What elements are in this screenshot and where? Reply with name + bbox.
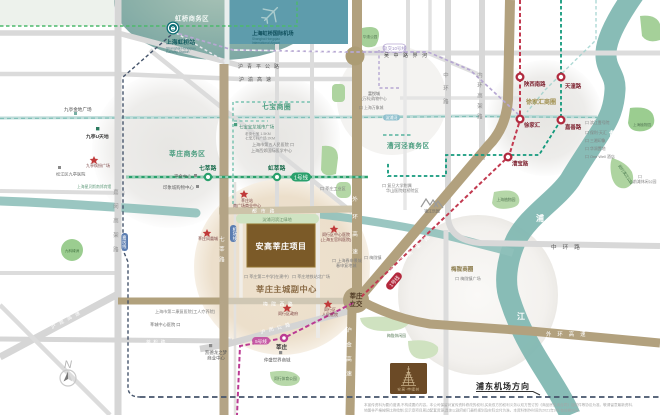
svg-text:华山医院虹桥院区: 华山医院虹桥院区 [386,187,419,193]
svg-text:九亭U天地: 九亭U天地 [85,133,109,140]
svg-text:莘城中心医院 口: 莘城中心医院 口 [150,321,180,328]
svg-text:Railway Station: Railway Station [166,50,189,54]
svg-text:口 三湘印象: 口 三湘印象 [585,138,606,143]
svg-text:N: N [64,359,72,371]
svg-text:老街七宝 1.5KM: 老街七宝 1.5KM [245,131,271,136]
svg-text:江: 江 [517,311,525,321]
svg-text:闵行区政府: 闵行区政府 [278,310,298,316]
svg-text:沪金高速: 沪金高速 [345,326,352,385]
svg-text:莘松路: 莘松路 [146,339,168,346]
svg-text:上海植物园: 上海植物园 [497,197,516,202]
svg-text:口 保利·天汇: 口 保利·天汇 [585,130,607,135]
svg-text:九科绿洲: 九科绿洲 [65,248,80,253]
svg-text:华漕公园: 华漕公园 [363,34,378,39]
svg-text:淀浦河滨江绿地: 淀浦河滨江绿地 [262,216,292,223]
svg-text:上海虹桥国际机场: 上海虹桥国际机场 [252,29,294,37]
svg-text:松江区九亭医院: 松江区九亭医院 [56,171,86,178]
svg-text:(上海五官科医院): (上海五官科医院) [321,236,352,242]
svg-text:梅陇商圈: 梅陇商圈 [451,265,474,273]
svg-text:沪青平公路: 沪青平公路 [238,63,283,70]
svg-text:上海星贝斯南郊宾馆: 上海星贝斯南郊宾馆 [77,184,111,189]
svg-text:沪渝高速: 沪渝高速 [239,76,275,83]
svg-text:口 梅陇镇广场: 口 梅陇镇广场 [455,275,481,281]
svg-text:莘庄: 莘庄 [350,291,363,300]
svg-text:莘庄凤凰城: 莘庄凤凰城 [198,235,218,241]
svg-text:天潼路: 天潼路 [565,82,582,90]
svg-text:七宝商圈: 七宝商圈 [262,102,291,111]
svg-text:(万科)购物中心: (万科)购物中心 [361,96,387,101]
svg-text:徐家汇: 徐家汇 [523,121,541,129]
svg-text:漕河泾商务区: 漕河泾商务区 [387,141,430,150]
svg-text:莘庄主城副中心: 莘庄主城副中心 [256,284,317,294]
svg-text:口 华润置地: 口 华润置地 [585,146,606,151]
svg-text:上海虹桥站: 上海虹桥站 [166,38,195,46]
svg-text:平金中心: 平金中心 [174,173,192,180]
svg-text:人民医院: 人民医院 [322,311,338,317]
svg-text:九亭金地广场: 九亭金地广场 [64,106,92,113]
svg-text:轨交10号线: 轨交10号线 [383,45,406,52]
svg-text:安高·申缇树: 安高·申缇树 [397,387,419,392]
svg-text:本宣传资料为要约邀请,不构成要约内容。本公司保留对宣传资料修: 本宣传资料为要约邀请,不构成要约内容。本公司保留对宣传资料修改的权利,买卖双方的… [364,402,633,407]
svg-text:口 莘庄工业区: 口 莘庄工业区 [320,185,346,191]
svg-text:前滩休闲公园: 前滩休闲公园 [633,179,656,184]
svg-text:虹桥商务区: 虹桥商务区 [175,14,209,23]
svg-text:中环路: 中环路 [551,243,586,251]
svg-text:七宝宝龙城市广场: 七宝宝龙城市广场 [239,124,275,131]
svg-text:莘庄: 莘庄 [276,343,288,351]
svg-text:机场线: 机场线 [232,226,238,241]
svg-text:七莘路: 七莘路 [199,164,217,172]
svg-text:浦东机场方向: 浦东机场方向 [476,381,530,391]
svg-text:5号线: 5号线 [255,338,267,345]
svg-text:七莘路: 七莘路 [218,235,225,267]
svg-text:闵行体育公园: 闵行体育公园 [274,376,297,381]
svg-text:上海市第二康复医院(工人疗养院): 上海市第二康复医院(工人疗养院) [155,308,216,314]
svg-text:中环路: 中环路 [442,71,449,112]
svg-text:印象城购物中心: 印象城购物中心 [163,184,194,191]
svg-text:1号线: 1号线 [294,174,309,182]
svg-text:陕西南路: 陕西南路 [524,80,546,88]
svg-text:地图非严格按照比例绘制,仅示意项目周边配套资源,具体以政府部: 地图非严格按照比例绘制,仅示意项目周边配套资源,具体以政府部门最终规划及实际交付… [364,408,582,413]
svg-text:外环高速: 外环高速 [546,330,592,338]
svg-text:上海市第五人民医院 口: 上海市第五人民医院 口 [252,141,294,147]
svg-text:虹莘路: 虹莘路 [268,164,286,172]
svg-text:内环高架路: 内环高架路 [476,71,483,124]
svg-text:吴中路界河: 吴中路界河 [384,52,432,59]
svg-text:嘉闵高架路: 嘉闵高架路 [112,188,119,261]
svg-text:锦江乐园: 锦江乐园 [424,209,440,214]
svg-text:七宝万科广场 2KM: 七宝万科广场 2KM [245,136,275,141]
svg-text:口 莘庄地铁站北广场: 口 莘庄地铁站北广场 [292,273,330,279]
svg-text:上海植物园: 上海植物园 [633,122,651,127]
svg-text:商业中心: 商业中心 [207,355,225,362]
svg-text:漕宝路: 漕宝路 [512,160,529,168]
svg-text:梅陇休闲园: 梅陇休闲园 [387,333,406,338]
svg-text:口 莘庄第二中学(在建中): 口 莘庄第二中学(在建中) [244,273,289,279]
svg-text:梅陇西路: 梅陇西路 [263,301,296,308]
svg-text:安高莘庄项目: 安高莘庄项目 [256,241,307,251]
svg-text:仲盛世界商城: 仲盛世界商城 [264,357,291,364]
svg-text:口 One Well 酒店: 口 One Well 酒店 [585,154,615,159]
svg-text:九亭缤纷广场: 九亭缤纷广场 [86,162,110,168]
svg-text:黄: 黄 [609,129,617,139]
svg-text:外环高速: 外环高速 [351,195,358,266]
svg-text:徐家汇商圈: 徐家汇商圈 [525,98,556,106]
svg-text:莘庄商务区: 莘庄商务区 [169,149,205,158]
svg-text:口 上海万象城: 口 上海万象城 [359,105,384,110]
svg-text:淀浦河: 淀浦河 [386,114,398,120]
svg-text:口 滨江壹号院: 口 滨江壹号院 [585,120,610,125]
svg-text:上海西郊国际医学中心: 上海西郊国际医学中心 [251,147,292,153]
svg-text:嘉善路: 嘉善路 [564,123,582,131]
svg-text:International Airport: International Airport [252,41,280,45]
svg-text:立交: 立交 [350,299,363,308]
svg-text:春申复地城: 春申复地城 [336,262,356,268]
svg-text:嘉闵线: 嘉闵线 [121,234,127,249]
svg-text:口 梅陇镇: 口 梅陇镇 [364,254,382,260]
svg-text:浦: 浦 [536,213,544,223]
svg-text:南广场商业中心: 南广场商业中心 [233,202,261,208]
svg-text:都市路: 都市路 [252,208,278,215]
svg-text:富悦城: 富悦城 [368,90,380,96]
